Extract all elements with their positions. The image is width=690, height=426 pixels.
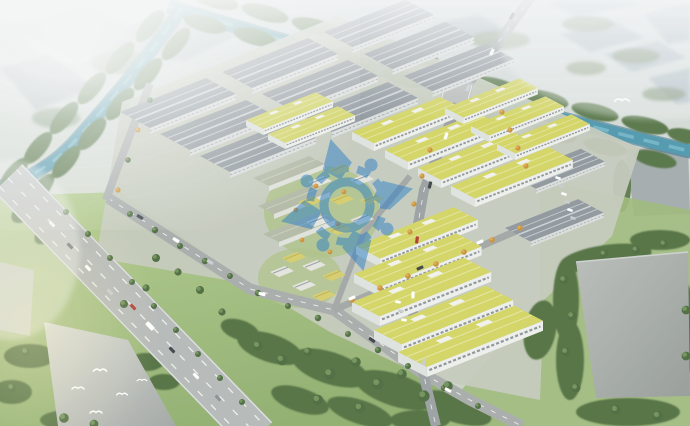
industrial-park-rendering: [0, 0, 690, 426]
atmosphere: [0, 0, 690, 426]
aerial-rendering-stage: [0, 0, 690, 426]
haze-veil: [0, 0, 690, 426]
